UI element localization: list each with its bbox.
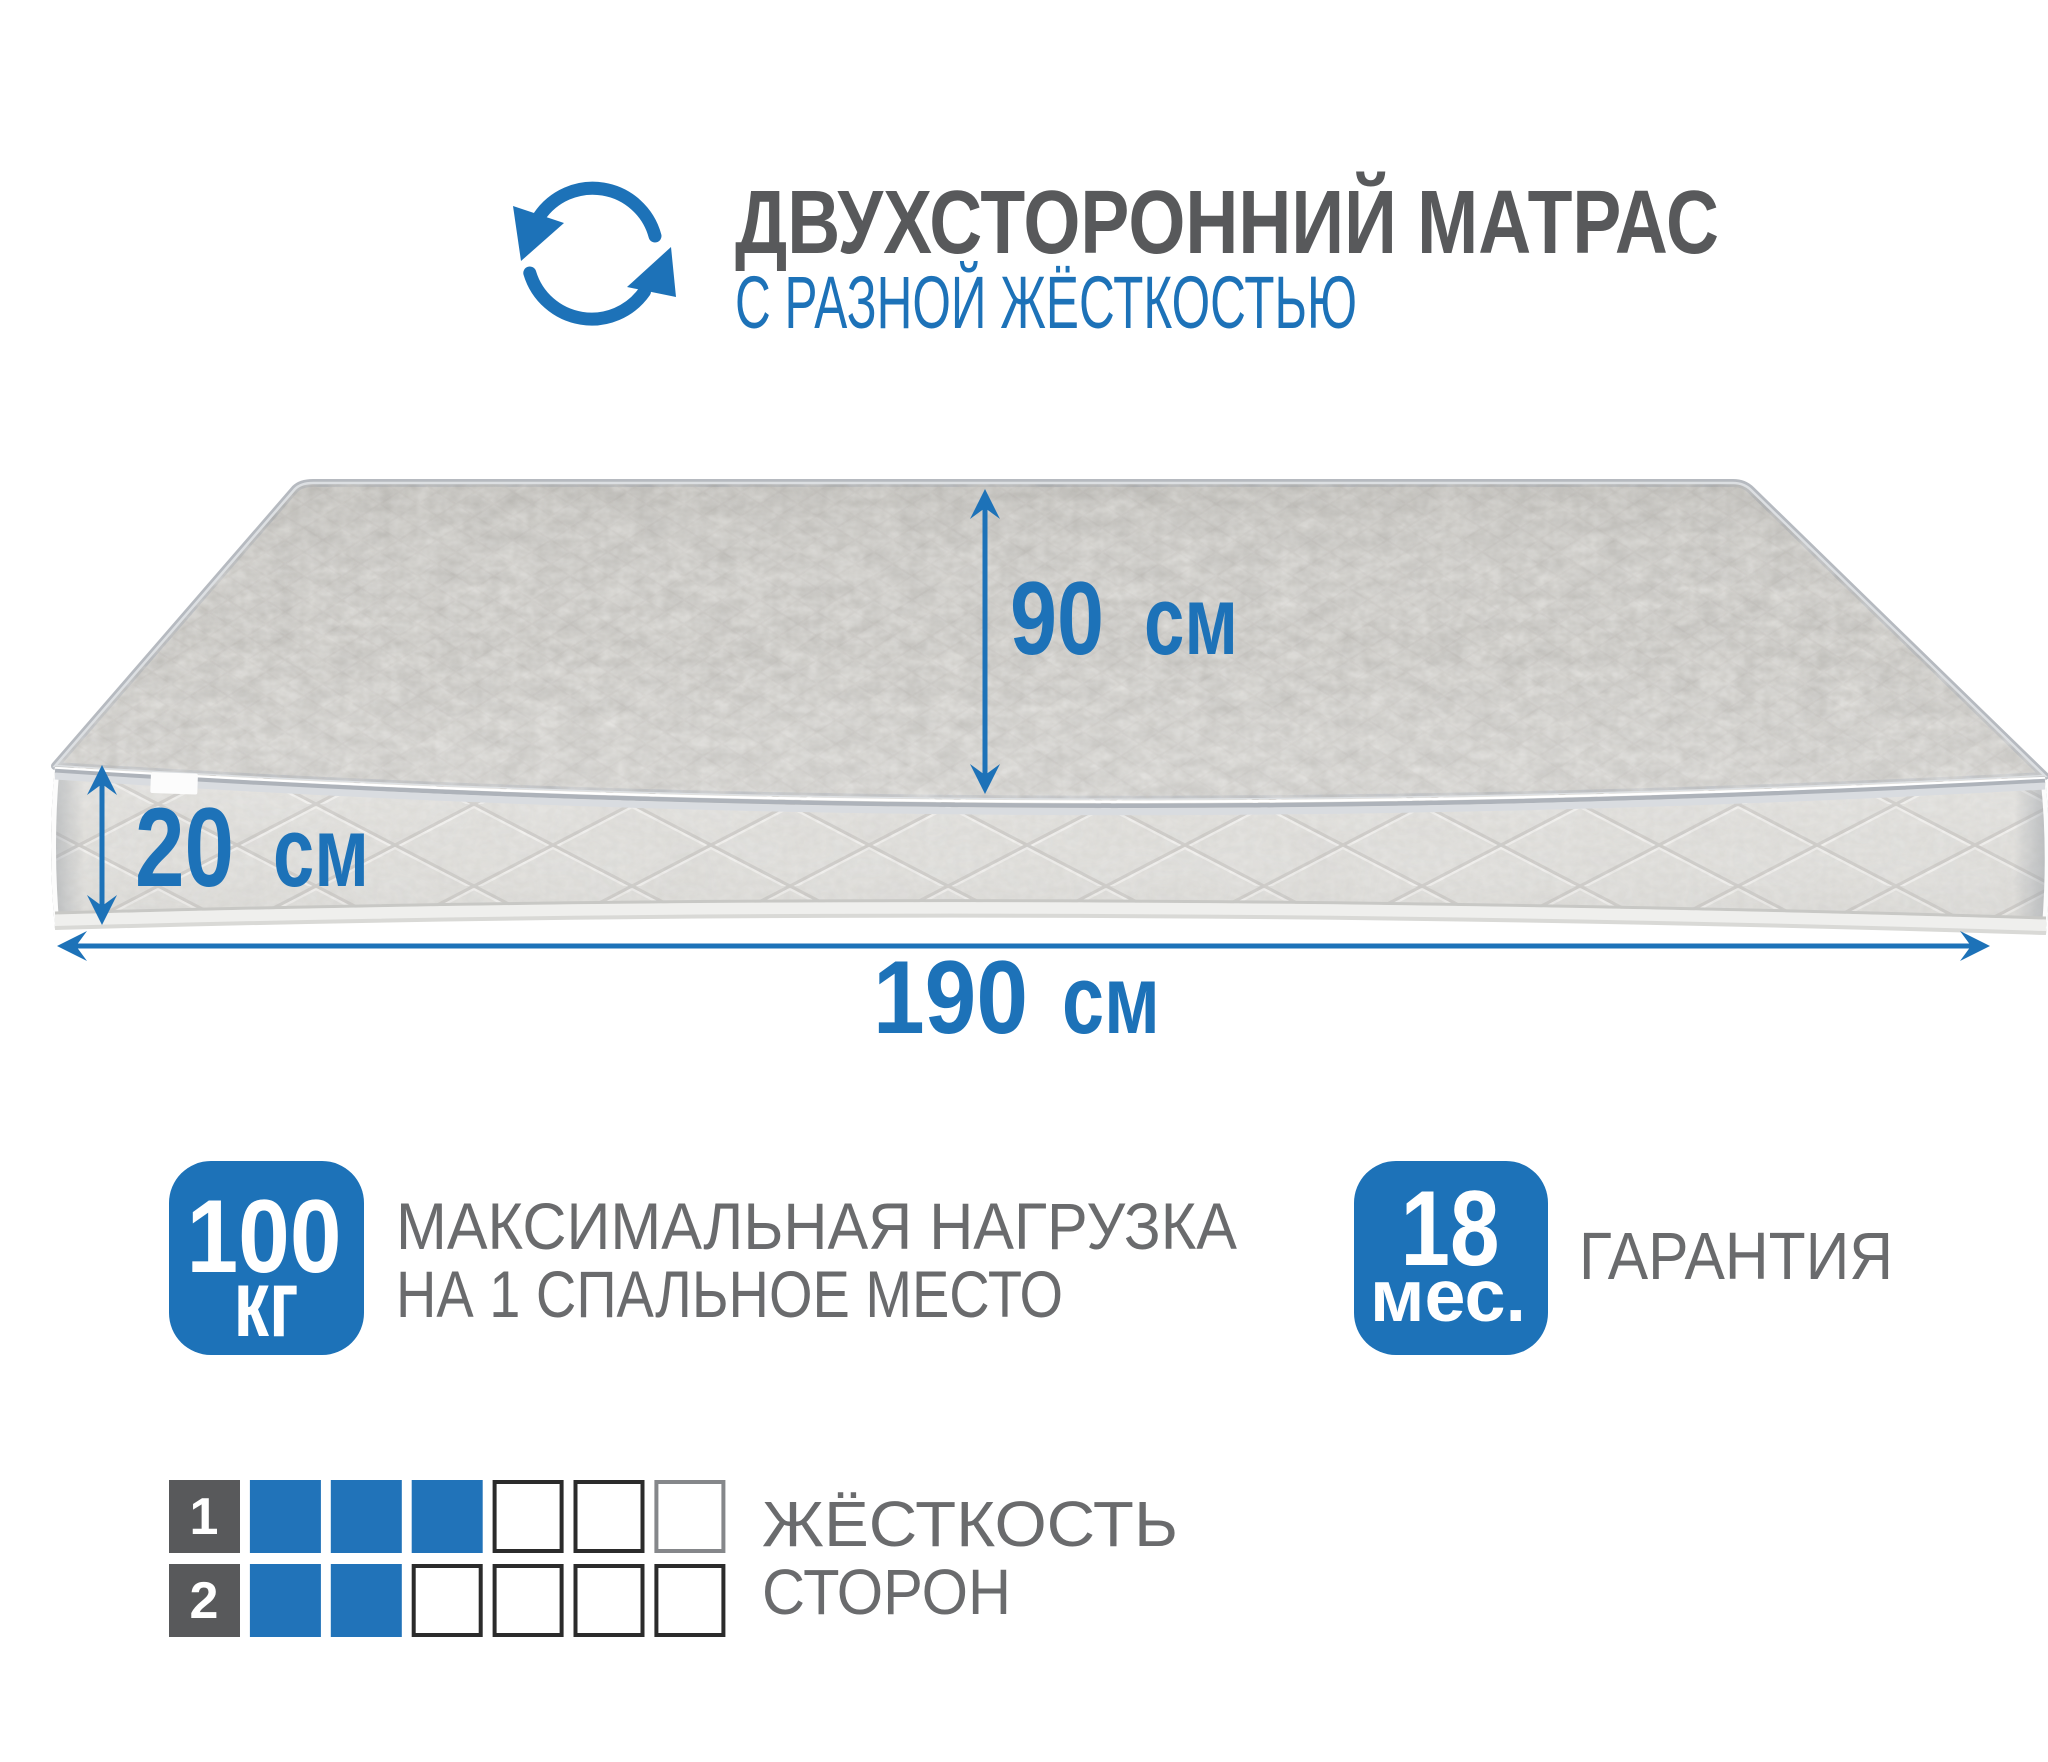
svg-text:90: 90 [1010,561,1104,677]
svg-text:190: 190 [873,940,1028,1056]
svg-text:МАКСИМАЛЬНАЯ НАГРУЗКА: МАКСИМАЛЬНАЯ НАГРУЗКА [396,1189,1237,1263]
svg-text:СТОРОН: СТОРОН [762,1556,1011,1628]
svg-text:см: см [1062,945,1160,1054]
svg-text:см: см [1144,566,1238,675]
svg-text:1: 1 [190,1488,219,1546]
svg-text:С РАЗНОЙ ЖЁСТКОСТЬЮ: С РАЗНОЙ ЖЁСТКОСТЬЮ [735,261,1357,344]
svg-text:2: 2 [190,1572,219,1630]
svg-text:ДВУХСТОРОННИЙ МАТРАС: ДВУХСТОРОННИЙ МАТРАС [735,170,1719,273]
svg-text:НА 1 СПАЛЬНОЕ МЕСТО: НА 1 СПАЛЬНОЕ МЕСТО [396,1257,1063,1331]
svg-text:кг: кг [234,1250,299,1357]
svg-text:мес.: мес. [1370,1256,1526,1337]
svg-text:ГАРАНТИЯ: ГАРАНТИЯ [1579,1219,1893,1294]
svg-text:ЖЁСТКОСТЬ: ЖЁСТКОСТЬ [762,1488,1178,1560]
svg-text:см: см [273,796,369,907]
svg-text:20: 20 [135,785,234,910]
